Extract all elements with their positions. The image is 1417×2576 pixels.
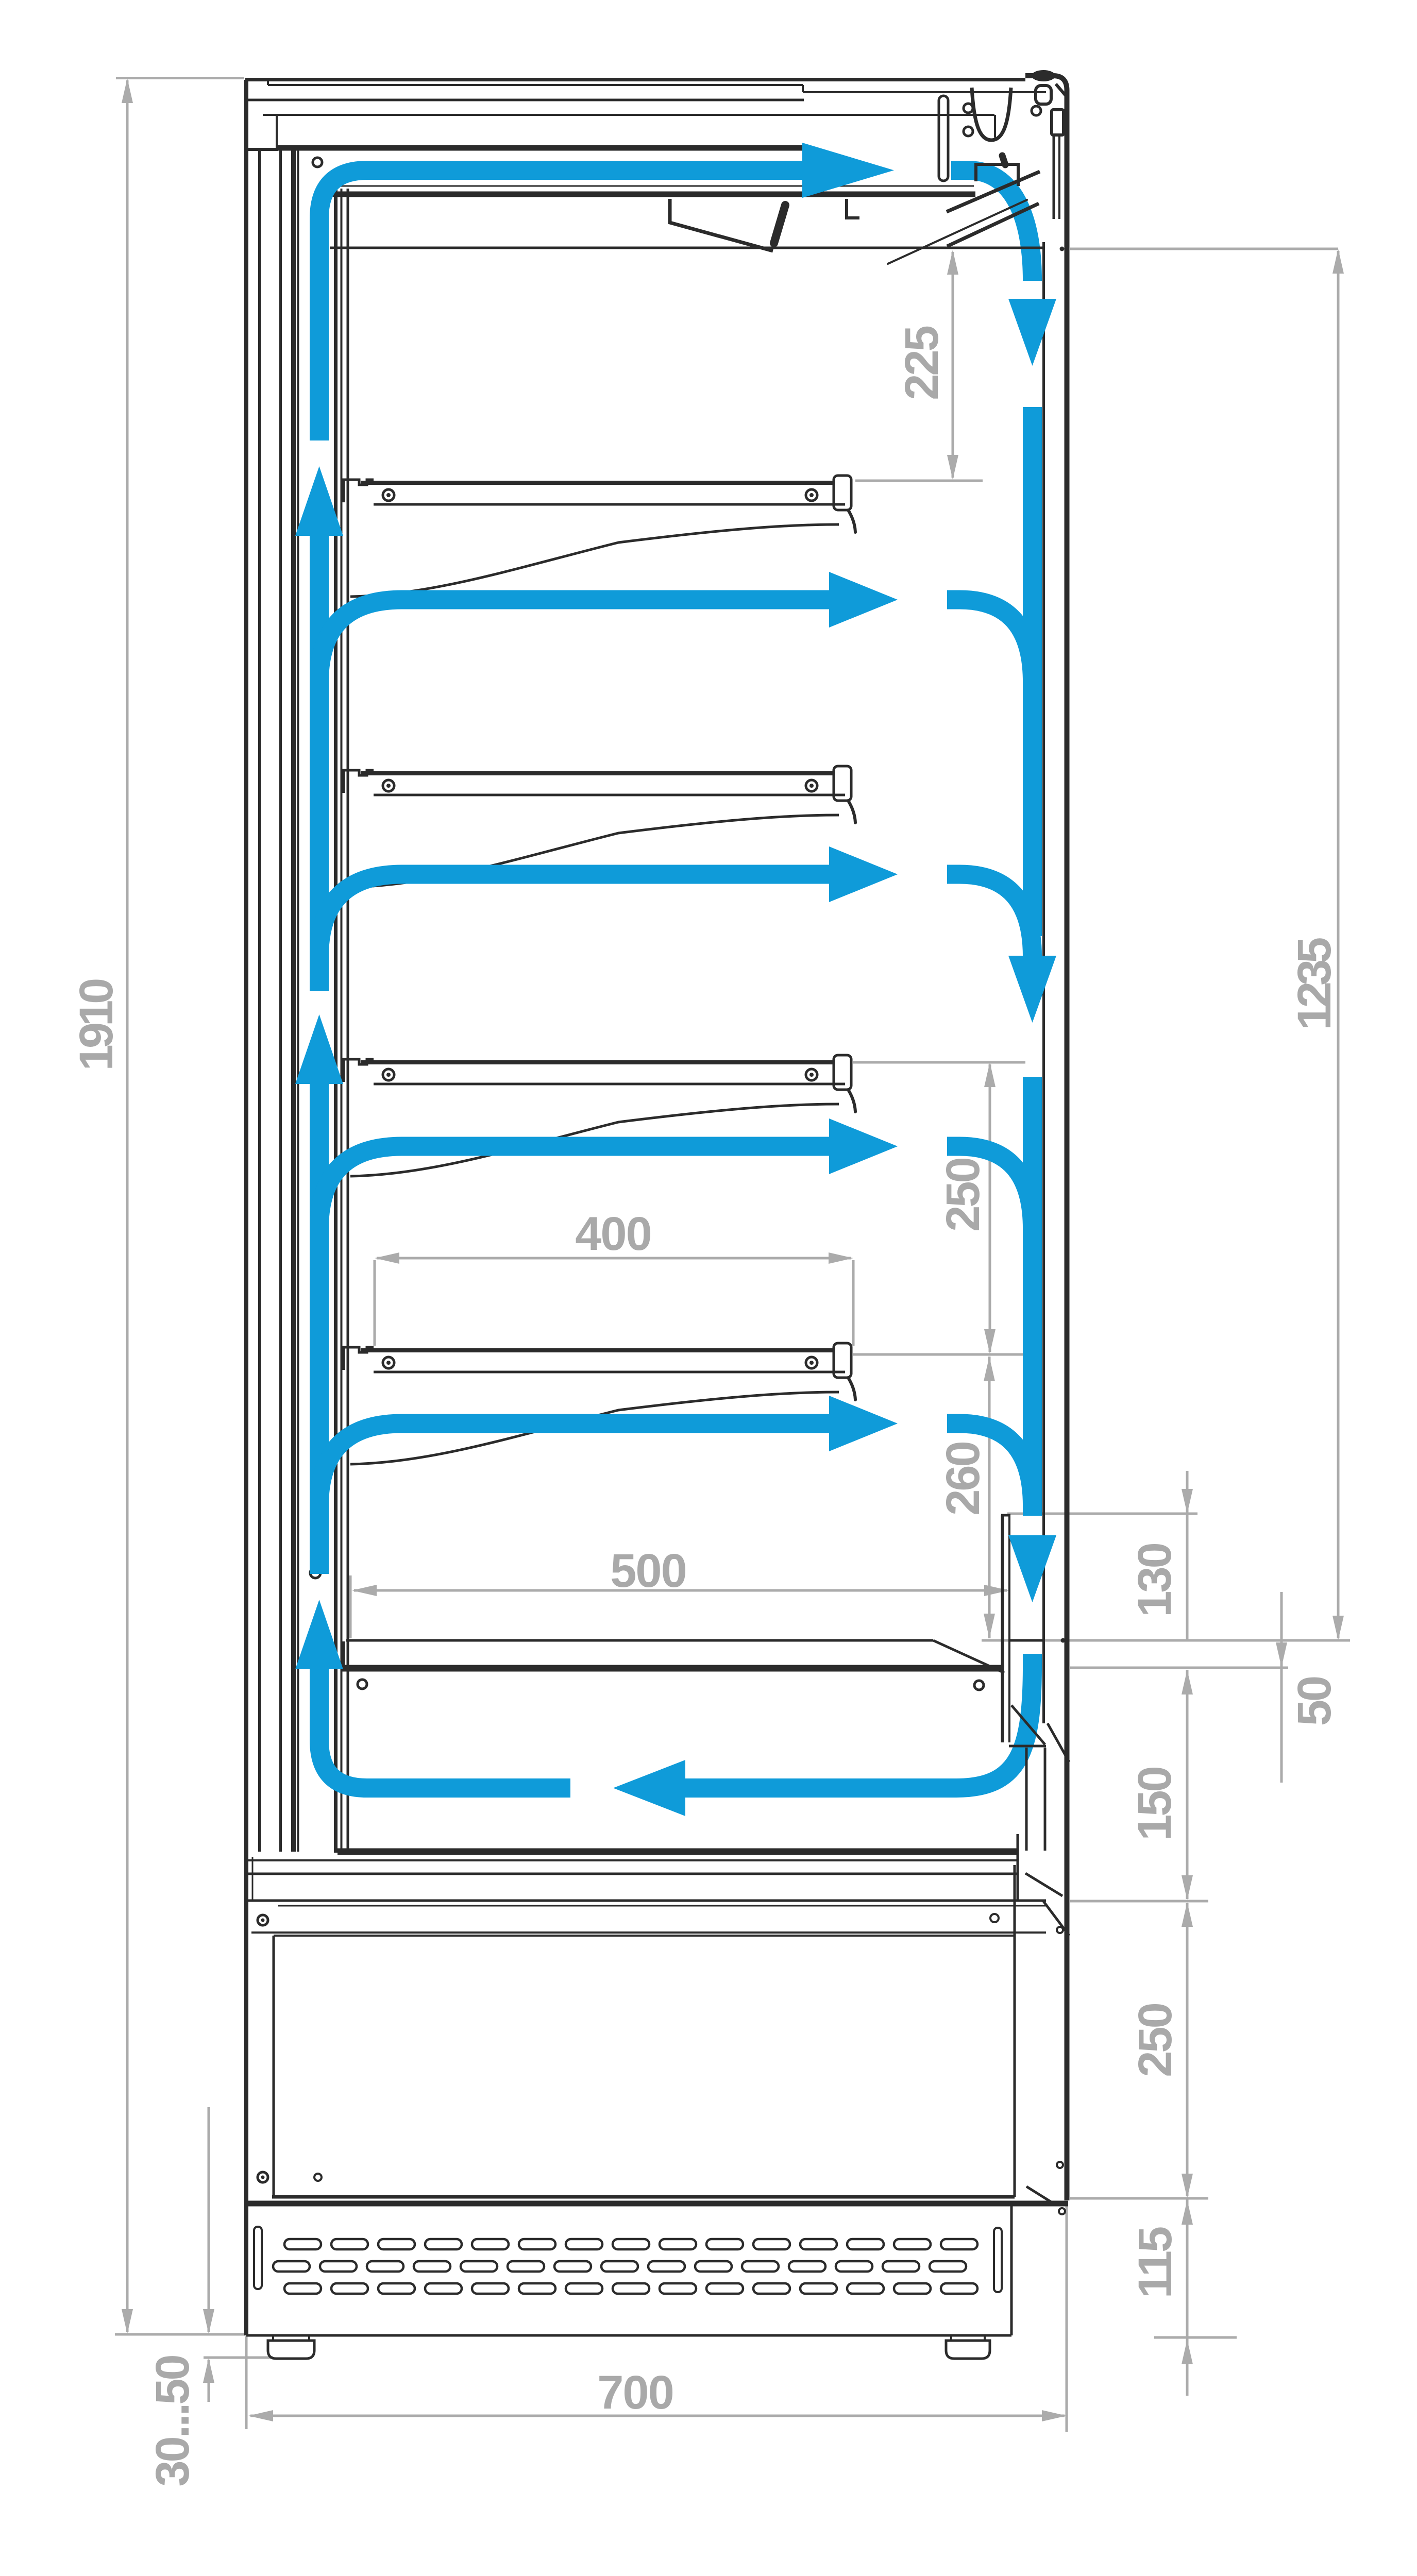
svg-text:1910: 1910 xyxy=(70,979,123,1071)
svg-text:1235: 1235 xyxy=(1288,938,1341,1030)
svg-text:250: 250 xyxy=(937,1158,989,1231)
svg-text:115: 115 xyxy=(1129,2227,1182,2298)
svg-text:225: 225 xyxy=(896,326,948,400)
svg-text:700: 700 xyxy=(597,2366,673,2419)
svg-text:260: 260 xyxy=(937,1442,989,1515)
svg-text:50: 50 xyxy=(1288,1677,1341,1726)
svg-text:130: 130 xyxy=(1128,1544,1181,1617)
svg-text:30...50: 30...50 xyxy=(146,2356,199,2487)
svg-text:150: 150 xyxy=(1128,1767,1181,1840)
svg-text:400: 400 xyxy=(575,1208,651,1260)
svg-text:500: 500 xyxy=(610,1545,686,1597)
svg-text:250: 250 xyxy=(1129,2004,1182,2077)
